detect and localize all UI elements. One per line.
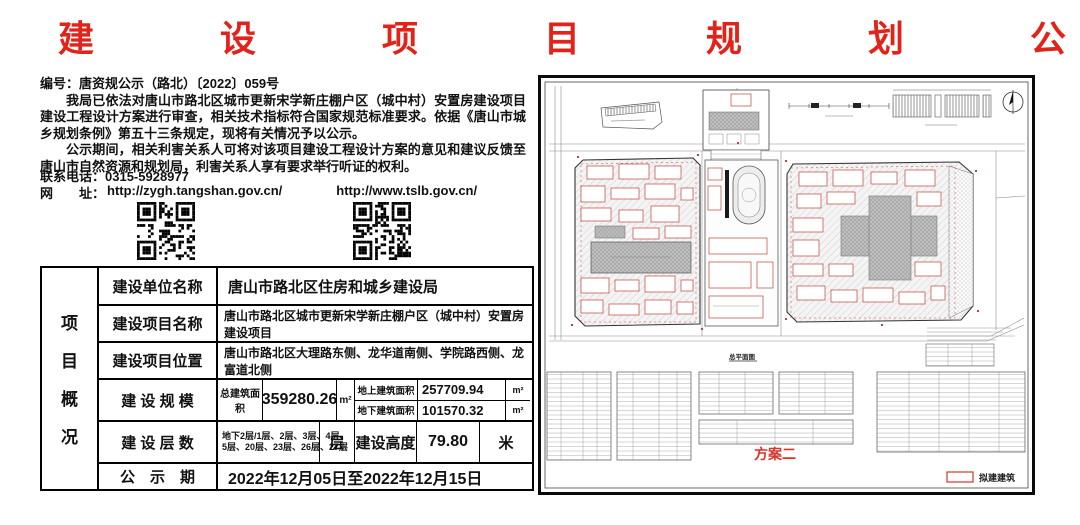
- row-label: 公 示 期: [99, 464, 218, 489]
- drawing-title: 总平面图: [729, 352, 756, 361]
- row-value: 唐山市路北区城市更新宋学新庄棚户区（城中村）安置房建设项目: [218, 306, 532, 341]
- height-unit: 米: [480, 422, 532, 462]
- below-unit: m²: [506, 401, 530, 421]
- legend: 拟建建筑: [947, 472, 1015, 483]
- row-label: 建 设 层 数: [99, 422, 218, 462]
- table-row-notice-period: 公 示 期 2022年12月05日至2022年12月15日: [99, 464, 532, 489]
- notice-paragraph-1: 我局已依法对唐山市路北区城市更新宋学新庄棚户区（城中村）安置房建设项目建设工程设…: [40, 93, 526, 143]
- below-label: 地下建筑面积: [355, 401, 418, 421]
- below-ground-row: 地下建筑面积 101570.32 m²: [355, 401, 530, 421]
- notice-text-block: 编号：唐资规公示（路北）〔2022〕059号 我局已依法对唐山市路北区城市更新宋…: [40, 76, 526, 175]
- total-area-label: 总建筑面积: [218, 380, 263, 420]
- side-char: 目: [61, 347, 78, 372]
- url-zygh[interactable]: http://zygh.tangshan.gov.cn/: [107, 183, 282, 202]
- area-breakdown: 地上建筑面积 257709.94 m² 地下建筑面积 101570.32 m²: [355, 380, 530, 420]
- height-value: 79.80: [417, 422, 480, 462]
- above-ground-row: 地上建筑面积 257709.94 m²: [355, 380, 530, 401]
- web-line: 网 址： http://zygh.tangshan.gov.cn/ http:/…: [40, 183, 477, 202]
- table-side-header: 项 目 概 况: [42, 268, 99, 489]
- qr-code-tslb: [353, 202, 411, 260]
- site-plan-panel: 总平面图 方案二 拟建建筑: [538, 75, 1035, 495]
- middle-school-block: [705, 160, 778, 326]
- table-row-floors: 建 设 层 数 地下2层/1层、2层、3层、4层、 5层、20层、23层、26层…: [99, 422, 532, 464]
- table-row-project-location: 建设项目位置 唐山市路北区大理路东侧、龙华道南侧、学院路西侧、龙富道北侧: [99, 343, 532, 380]
- floors-text: 地下2层/1层、2层、3层、4层、 5层、20层、23层、26层、27层: [218, 422, 320, 462]
- above-unit: m²: [506, 380, 530, 400]
- mini-table: [926, 344, 994, 366]
- floors-unit: 层: [320, 422, 355, 462]
- plan-variant-label: 方案二: [754, 446, 796, 462]
- row-value: 2022年12月05日至2022年12月15日: [218, 464, 532, 489]
- qr-code-zygh: [137, 202, 195, 260]
- right-compound: [787, 162, 973, 322]
- north-arrow-icon: [1003, 90, 1023, 114]
- above-label: 地上建筑面积: [355, 380, 418, 400]
- row-label: 建 设 规 模: [99, 380, 218, 420]
- table-row-scale: 建 设 规 模 总建筑面积 359280.26 m² 地上建筑面积 257709…: [99, 380, 532, 422]
- total-area-value: 359280.26: [263, 380, 337, 420]
- above-value: 257709.94: [418, 380, 506, 400]
- top-left-parcel: [601, 102, 662, 129]
- side-char: 况: [61, 423, 78, 448]
- left-compound: [575, 158, 700, 326]
- side-char: 项: [61, 309, 78, 334]
- site-plan-drawing: 总平面图 方案二 拟建建筑: [541, 78, 1032, 492]
- url-tslb[interactable]: http://www.tslb.gov.cn/: [336, 183, 477, 202]
- row-label: 建设单位名称: [99, 268, 218, 304]
- side-char: 概: [61, 385, 78, 410]
- wall-elevation-detail: [789, 103, 889, 116]
- project-overview-table: 项 目 概 况 建设单位名称 唐山市路北区住房和城乡建设局 建设项目名称 唐山市…: [40, 266, 534, 491]
- row-label: 建设项目位置: [99, 343, 218, 378]
- below-value: 101570.32: [418, 401, 506, 421]
- doc-number: 编号：唐资规公示（路北）〔2022〕059号: [40, 76, 526, 93]
- row-value: 唐山市路北区大理路东侧、龙华道南侧、学院路西侧、龙富道北侧: [218, 343, 532, 378]
- page-title: 建 设 项 目 规 划 公 示: [0, 10, 1080, 62]
- legend-label: 拟建建筑: [979, 472, 1015, 483]
- row-label: 建设项目名称: [99, 306, 218, 341]
- total-area-unit: m²: [337, 380, 355, 420]
- web-label: 网 址：: [40, 183, 105, 202]
- legend-proposed-building-swatch: [947, 472, 973, 482]
- height-label: 建设高度: [355, 422, 417, 462]
- annex-complex: [703, 90, 769, 169]
- table-row-unit-name: 建设单位名称 唐山市路北区住房和城乡建设局: [99, 268, 532, 306]
- fence-elevation-detail: [893, 90, 991, 125]
- table-row-project-name: 建设项目名称 唐山市路北区城市更新宋学新庄棚户区（城中村）安置房建设项目: [99, 306, 532, 343]
- row-value: 唐山市路北区住房和城乡建设局: [218, 268, 532, 304]
